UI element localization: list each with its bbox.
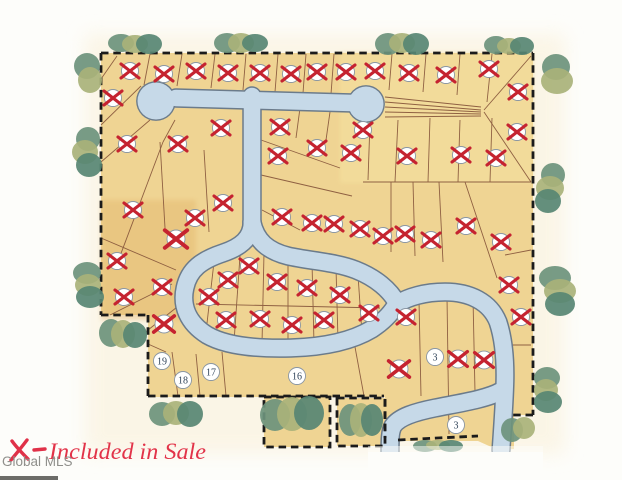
svg-text:Global MLS: Global MLS — [2, 454, 73, 469]
svg-text:17: 17 — [206, 368, 216, 379]
svg-text:19: 19 — [157, 357, 167, 368]
svg-text:3: 3 — [454, 421, 459, 432]
svg-text:18: 18 — [178, 376, 188, 387]
svg-text:3: 3 — [433, 353, 438, 364]
svg-text:16: 16 — [292, 372, 302, 383]
